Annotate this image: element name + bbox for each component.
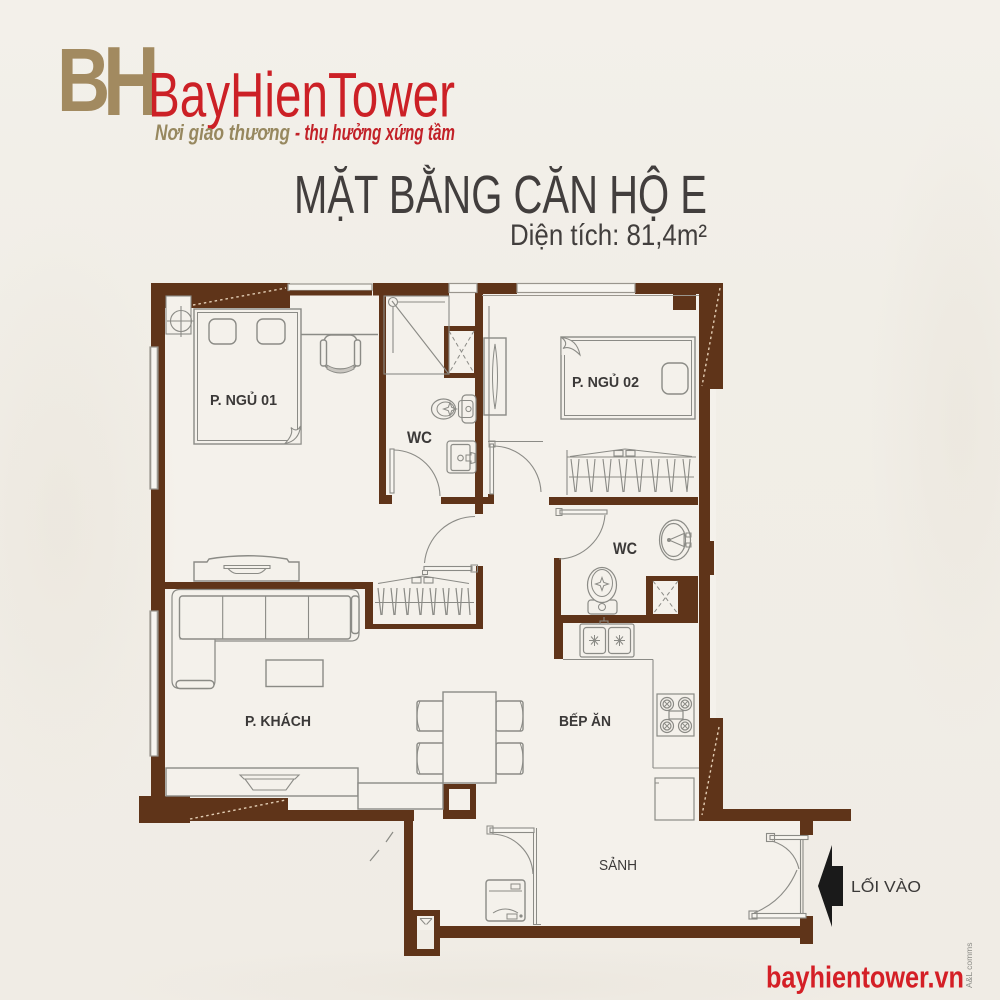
svg-text:P. NGỦ 01: P. NGỦ 01 [210,391,277,409]
svg-text:LỐI VÀO: LỐI VÀO [851,876,921,896]
svg-text:A&L comms: A&L comms [964,942,974,988]
svg-text:WC: WC [407,428,432,447]
svg-text:P. NGỦ 02: P. NGỦ 02 [572,373,639,391]
svg-text:P. KHÁCH: P. KHÁCH [245,713,311,730]
svg-text:- thụ hưởng xứng tầm: - thụ hưởng xứng tầm [295,120,455,145]
svg-text:WC: WC [613,539,637,558]
svg-text:Diện tích: 81,4m²: Diện tích: 81,4m² [510,219,707,252]
svg-text:BẾP ĂN: BẾP ĂN [559,713,611,730]
svg-text:SẢNH: SẢNH [599,857,637,874]
svg-text:Nơi giao thương: Nơi giao thương [155,120,290,145]
svg-text:bayhientower.vn: bayhientower.vn [766,961,964,995]
svg-text:MẶT BẰNG CĂN HỘ E: MẶT BẰNG CĂN HỘ E [294,165,707,225]
